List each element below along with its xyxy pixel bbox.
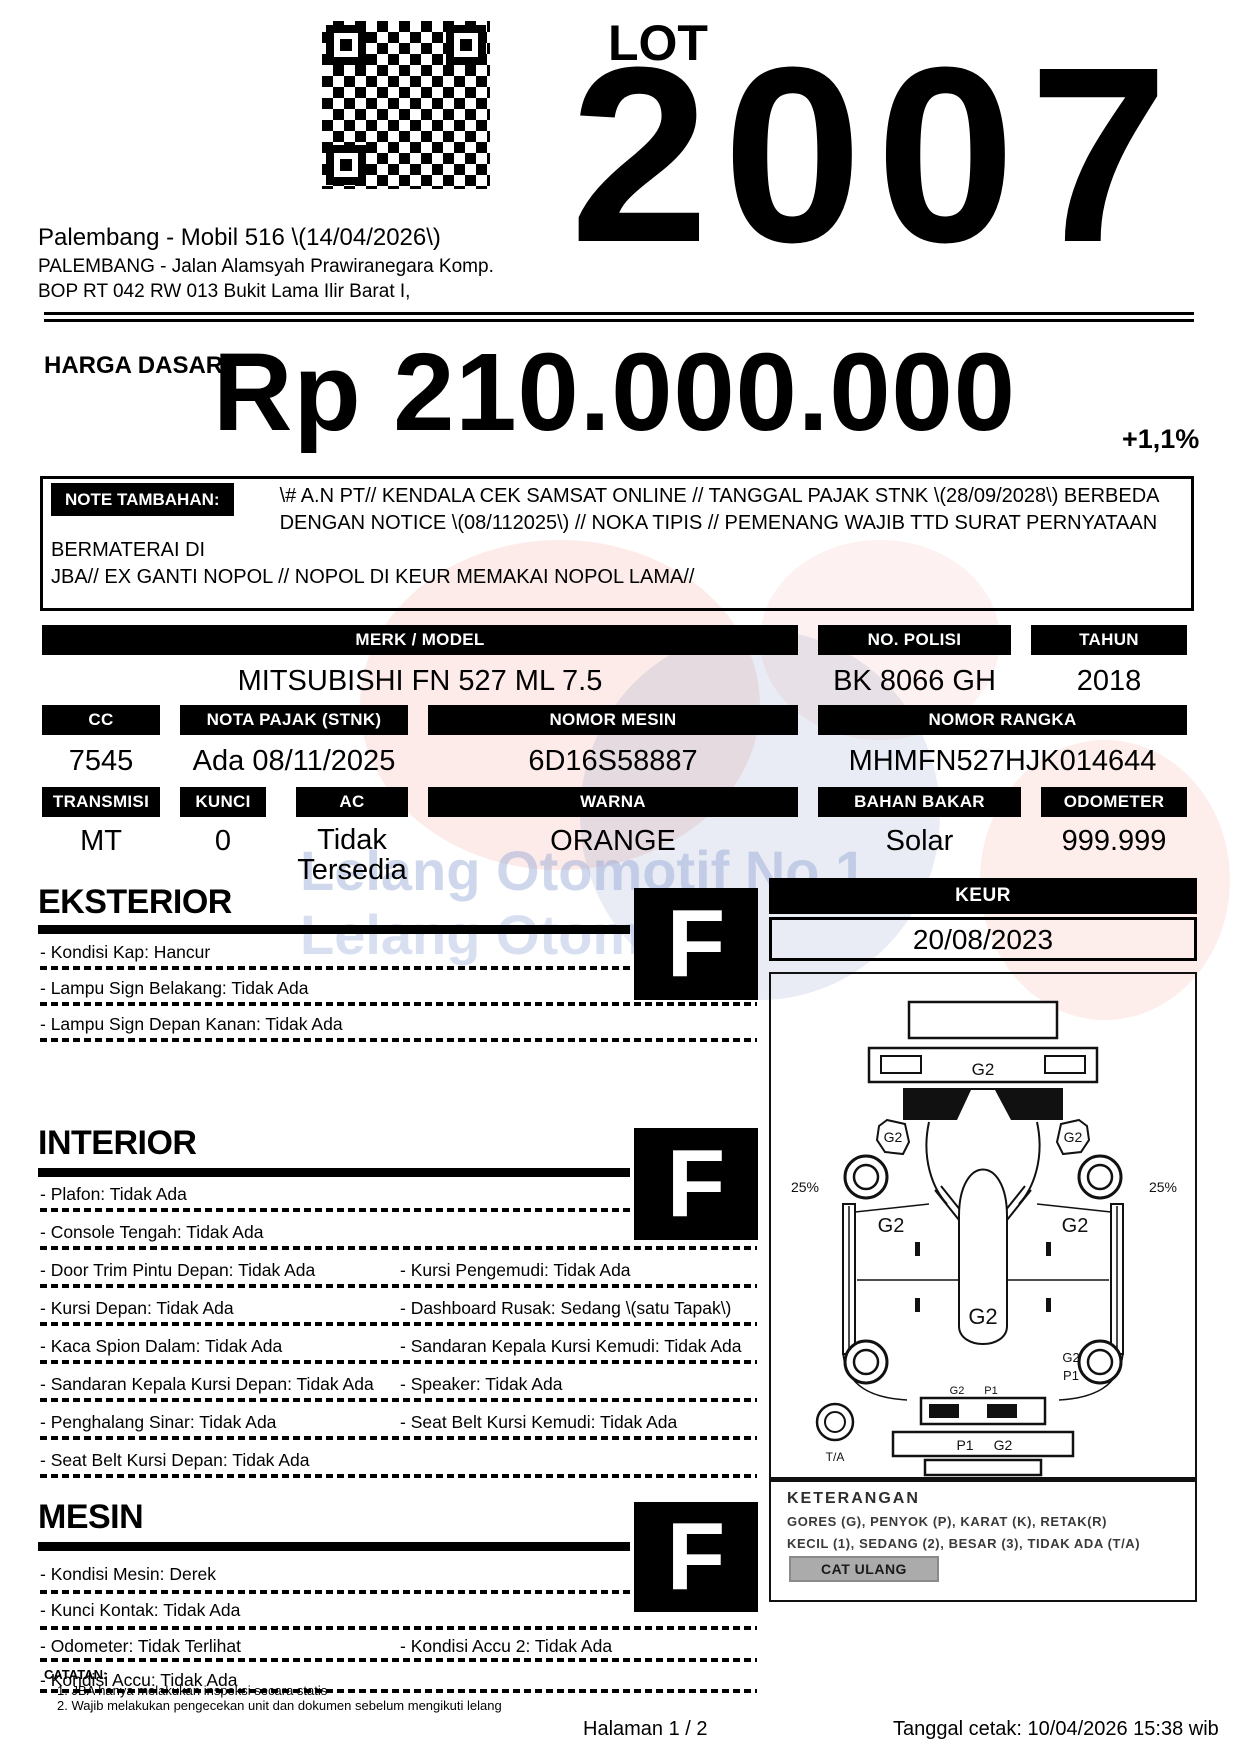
dotted-divider bbox=[40, 1360, 757, 1364]
grade-badge-mesin: F bbox=[634, 1502, 758, 1612]
interior-item: - Plafon: Tidak Ada bbox=[40, 1184, 187, 1205]
note-line-1: \# A.N PT// KENDALA CEK SAMSAT ONLINE //… bbox=[280, 485, 1160, 507]
header-cc: CC bbox=[42, 705, 160, 735]
value-warna: ORANGE bbox=[428, 825, 798, 857]
section-title-interior: INTERIOR bbox=[38, 1124, 196, 1163]
dotted-divider bbox=[40, 1474, 757, 1478]
diagram-label-rear-right-top: G2 bbox=[1062, 1350, 1079, 1365]
note-line-2: DENGAN NOTICE \(08/112025\) // NOKA TIPI… bbox=[51, 512, 1157, 561]
value-kunci: 0 bbox=[180, 825, 266, 857]
keterangan-title: KETERANGAN bbox=[787, 1490, 920, 1508]
diagram-label-rear-inner-left: G2 bbox=[950, 1385, 965, 1397]
mesin-item: - Kondisi Mesin: Derek bbox=[40, 1564, 216, 1585]
mesin-item: - Kondisi Accu 2: Tidak Ada bbox=[400, 1636, 612, 1657]
interior-item: - Dashboard Rusak: Sedang \(satu Tapak\) bbox=[400, 1298, 731, 1319]
interior-item: - Kaca Spion Dalam: Tidak Ada bbox=[40, 1336, 282, 1357]
dotted-divider bbox=[40, 1436, 757, 1440]
value-nomor-rangka: MHMFN527HJK014644 bbox=[818, 745, 1187, 777]
value-transmisi: MT bbox=[42, 825, 160, 857]
print-timestamp: Tanggal cetak: 10/04/2026 15:38 wib bbox=[893, 1718, 1219, 1741]
header-nomor-mesin: NOMOR MESIN bbox=[428, 705, 798, 735]
grade-badge-eksterior: F bbox=[634, 888, 758, 1000]
dotted-divider bbox=[40, 1322, 757, 1326]
header-warna: WARNA bbox=[428, 787, 798, 817]
diagram-label-rear-bar-left: P1 bbox=[956, 1437, 973, 1453]
section-title-eksterior: EKSTERIOR bbox=[38, 883, 232, 922]
section-underline-eksterior bbox=[38, 925, 630, 934]
header-tahun: TAHUN bbox=[1031, 625, 1187, 655]
note-line-3: JBA// EX GANTI NOPOL // NOPOL DI KEUR ME… bbox=[51, 566, 694, 588]
value-nomor-mesin: 6D16S58887 bbox=[428, 745, 798, 777]
diagram-label-spare-tire: T/A bbox=[826, 1450, 845, 1464]
mesin-item: - Odometer: Tidak Terlihat bbox=[40, 1636, 241, 1657]
base-price-amount: Rp 210.000.000 bbox=[213, 338, 1016, 448]
auction-title: Palembang - Mobil 516 \(14/04/2026\) bbox=[38, 224, 441, 252]
header-no-polisi: NO. POLISI bbox=[818, 625, 1011, 655]
note-box: NOTE TAMBAHAN: \# A.N PT// KENDALA CEK S… bbox=[40, 476, 1194, 611]
value-odometer: 999.999 bbox=[1041, 825, 1187, 857]
dotted-divider bbox=[40, 1658, 757, 1662]
mesin-item: - Kunci Kontak: Tidak Ada bbox=[40, 1600, 240, 1621]
diagram-label-rear-inner-right: P1 bbox=[984, 1385, 997, 1397]
truck-top-view-diagram: G2 G2 G2 25% 25% bbox=[771, 974, 1195, 1477]
header-ac: AC bbox=[296, 787, 408, 817]
eksterior-item: - Lampu Sign Belakang: Tidak Ada bbox=[40, 978, 309, 999]
lot-number: 2007 bbox=[570, 30, 1182, 280]
section-underline-interior bbox=[38, 1168, 630, 1177]
price-change-badge: +1,1% bbox=[1122, 424, 1199, 455]
header-odometer: ODOMETER bbox=[1041, 787, 1187, 817]
address-line-2: BOP RT 042 RW 013 Bukit Lama Ilir Barat … bbox=[38, 281, 410, 303]
value-ac: Tidak Tersedia bbox=[296, 825, 408, 885]
interior-item: - Sandaran Kepala Kursi Kemudi: Tidak Ad… bbox=[400, 1336, 741, 1357]
header-bahan-bakar: BAHAN BAKAR bbox=[818, 787, 1021, 817]
dotted-divider bbox=[40, 1284, 757, 1288]
damage-diagram-box: G2 G2 G2 25% 25% bbox=[769, 972, 1197, 1482]
section-underline-mesin bbox=[38, 1542, 630, 1551]
diagram-label-body-center: G2 bbox=[968, 1304, 997, 1329]
keterangan-line-2: KECIL (1), SEDANG (2), BESAR (3), TIDAK … bbox=[787, 1536, 1140, 1551]
header-nomor-rangka: NOMOR RANGKA bbox=[818, 705, 1187, 735]
interior-item: - Sandaran Kepala Kursi Depan: Tidak Ada bbox=[40, 1374, 374, 1395]
catatan-line-1: 1. JBA hanya melakukan inspeksi secara s… bbox=[57, 1683, 327, 1698]
catatan-line-2: 2. Wajib melakukan pengecekan unit dan d… bbox=[57, 1698, 502, 1713]
interior-item: - Console Tengah: Tidak Ada bbox=[40, 1222, 263, 1243]
eksterior-item: - Kondisi Kap: Hancur bbox=[40, 942, 210, 963]
value-tahun: 2018 bbox=[1031, 665, 1187, 697]
interior-item: - Kursi Depan: Tidak Ada bbox=[40, 1298, 234, 1319]
value-nota-pajak: Ada 08/11/2025 bbox=[180, 745, 408, 777]
header-kunci: KUNCI bbox=[180, 787, 266, 817]
value-no-polisi: BK 8066 GH bbox=[818, 665, 1011, 697]
diagram-label-fender-left: G2 bbox=[878, 1215, 905, 1237]
interior-item: - Seat Belt Kursi Depan: Tidak Ada bbox=[40, 1450, 309, 1471]
qr-code-icon bbox=[322, 21, 490, 189]
diagram-label-rear-right-bottom: P1 bbox=[1063, 1368, 1079, 1383]
diagram-label-tread-right: 25% bbox=[1149, 1179, 1177, 1195]
diagram-label-mirror-left: G2 bbox=[884, 1129, 903, 1145]
dotted-divider bbox=[40, 1038, 757, 1042]
section-title-mesin: MESIN bbox=[38, 1498, 143, 1537]
header-nota-pajak: NOTA PAJAK (STNK) bbox=[180, 705, 408, 735]
page-number: Halaman 1 / 2 bbox=[583, 1718, 708, 1741]
interior-item: - Speaker: Tidak Ada bbox=[400, 1374, 562, 1395]
dotted-divider bbox=[40, 1246, 757, 1250]
dotted-divider bbox=[40, 1002, 757, 1006]
value-merk-model: MITSUBISHI FN 527 ML 7.5 bbox=[42, 665, 798, 697]
diagram-label-fender-right: G2 bbox=[1062, 1215, 1089, 1237]
header-transmisi: TRANSMISI bbox=[42, 787, 160, 817]
interior-item: - Door Trim Pintu Depan: Tidak Ada bbox=[40, 1260, 315, 1281]
header-merk-model: MERK / MODEL bbox=[42, 625, 798, 655]
address-line-1: PALEMBANG - Jalan Alamsyah Prawiranegara… bbox=[38, 256, 494, 278]
diagram-label-mirror-right: G2 bbox=[1064, 1129, 1083, 1145]
grade-badge-interior: F bbox=[634, 1128, 758, 1240]
auction-lot-sheet: Lelang Otomotif No.1 Lelang Otomotif LOT… bbox=[0, 0, 1240, 1754]
base-price-label: HARGA DASAR : bbox=[44, 352, 238, 380]
keterangan-line-1: GORES (G), PENYOK (P), KARAT (K), RETAK(… bbox=[787, 1514, 1107, 1529]
dotted-divider bbox=[40, 1626, 757, 1630]
keur-date: 20/08/2023 bbox=[769, 917, 1197, 961]
cat-ulang-badge: CAT ULANG bbox=[789, 1556, 939, 1582]
interior-item: - Penghalang Sinar: Tidak Ada bbox=[40, 1412, 276, 1433]
interior-item: - Kursi Pengemudi: Tidak Ada bbox=[400, 1260, 631, 1281]
diagram-label-rear-bar-right: G2 bbox=[994, 1437, 1013, 1453]
keterangan-box: KETERANGAN GORES (G), PENYOK (P), KARAT … bbox=[769, 1482, 1197, 1602]
catatan-label: CATATAN: bbox=[44, 1667, 107, 1682]
diagram-label-tread-left: 25% bbox=[791, 1179, 819, 1195]
double-rule bbox=[44, 312, 1194, 322]
eksterior-item: - Lampu Sign Depan Kanan: Tidak Ada bbox=[40, 1014, 343, 1035]
value-bahan-bakar: Solar bbox=[818, 825, 1021, 857]
keur-header: KEUR bbox=[769, 878, 1197, 914]
interior-item: - Seat Belt Kursi Kemudi: Tidak Ada bbox=[400, 1412, 677, 1433]
value-cc: 7545 bbox=[42, 745, 160, 777]
diagram-label-front-bumper: G2 bbox=[972, 1060, 995, 1079]
dotted-divider bbox=[40, 1398, 757, 1402]
note-label: NOTE TAMBAHAN: bbox=[51, 483, 234, 516]
